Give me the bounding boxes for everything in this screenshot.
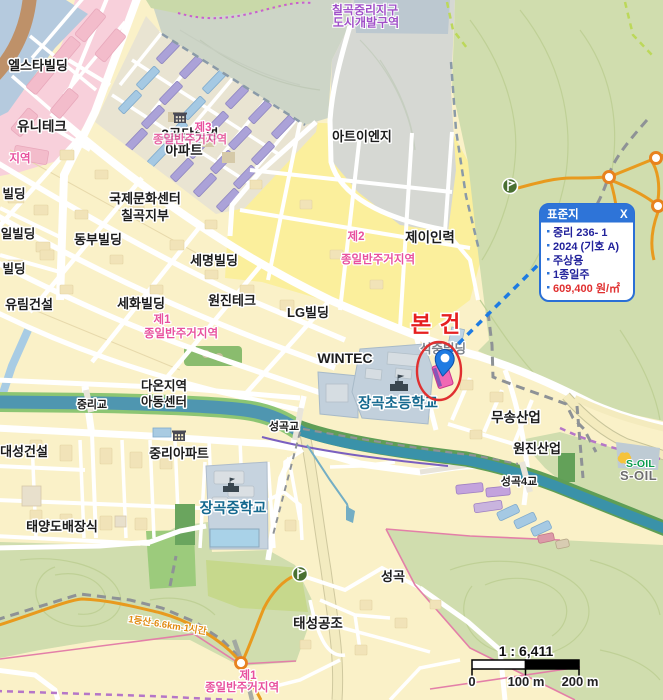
svg-text:종일반주거지역: 종일반주거지역 <box>153 132 227 146</box>
svg-text:제3: 제3 <box>195 120 212 134</box>
svg-text:지역: 지역 <box>9 151 30 165</box>
svg-text:WINTEC: WINTEC <box>317 350 372 366</box>
svg-text:세화빌딩: 세화빌딩 <box>117 296 165 311</box>
svg-text:원진테크: 원진테크 <box>208 293 256 308</box>
svg-text:대성건설: 대성건설 <box>0 444 48 459</box>
svg-text:종일반주거지역: 종일반주거지역 <box>144 326 218 340</box>
svg-text:1 : 6,411: 1 : 6,411 <box>499 643 554 659</box>
svg-text:빌딩: 빌딩 <box>2 261 25 276</box>
svg-text:장곡중학교: 장곡중학교 <box>200 499 267 517</box>
svg-text:태성공조: 태성공조 <box>293 616 343 631</box>
svg-text:중리아파트: 중리아파트 <box>149 446 209 461</box>
svg-text:제2: 제2 <box>348 229 365 243</box>
svg-text:다온지역: 다온지역 <box>141 378 187 393</box>
svg-text:유림건설: 유림건설 <box>5 297 53 312</box>
svg-text:200 m: 200 m <box>562 674 599 689</box>
svg-text:2024 (기호 A): 2024 (기호 A) <box>553 239 619 253</box>
svg-text:세명빌딩: 세명빌딩 <box>190 253 238 268</box>
svg-text:S-OIL: S-OIL <box>620 468 657 483</box>
svg-text:609,400 원/㎡: 609,400 원/㎡ <box>553 281 620 295</box>
svg-text:종일반주거지역: 종일반주거지역 <box>341 252 415 266</box>
svg-text:동부빌딩: 동부빌딩 <box>74 232 122 247</box>
svg-text:중리교: 중리교 <box>77 397 107 411</box>
svg-text:일빌딩: 일빌딩 <box>1 226 36 241</box>
svg-text:제1: 제1 <box>240 668 258 682</box>
svg-text:아동센터: 아동센터 <box>141 394 187 409</box>
svg-text:성곡: 성곡 <box>381 569 405 584</box>
svg-text:빌딩: 빌딩 <box>2 186 25 201</box>
svg-text:제이인력: 제이인력 <box>405 229 455 245</box>
svg-text:국제문화센터: 국제문화센터 <box>109 191 181 206</box>
svg-text:아트이엔지: 아트이엔지 <box>332 129 392 144</box>
svg-text:도시개발구역: 도시개발구역 <box>333 15 399 30</box>
svg-text:표준지: 표준지 <box>547 207 579 221</box>
svg-text:종일반주거지역: 종일반주거지역 <box>205 680 279 694</box>
svg-text:유니테크: 유니테크 <box>17 119 67 134</box>
svg-text:태양도배장식: 태양도배장식 <box>26 519 98 534</box>
svg-text:본 건: 본 건 <box>411 312 462 337</box>
svg-text:성곡4교: 성곡4교 <box>501 474 537 488</box>
svg-text:원진산업: 원진산업 <box>513 441 561 456</box>
svg-text:0: 0 <box>468 674 475 689</box>
svg-text:중리 236- 1: 중리 236- 1 <box>553 225 608 239</box>
svg-text:엘스타빌딩: 엘스타빌딩 <box>8 58 68 73</box>
svg-text:성곡교: 성곡교 <box>269 419 299 433</box>
svg-text:주상용: 주상용 <box>553 253 583 267</box>
svg-text:X: X <box>620 209 628 221</box>
svg-text:LG빌딩: LG빌딩 <box>287 305 329 320</box>
svg-text:100 m: 100 m <box>508 674 545 689</box>
svg-text:1종일주: 1종일주 <box>553 267 589 281</box>
svg-text:무송산업: 무송산업 <box>491 409 541 425</box>
svg-text:제1: 제1 <box>154 312 172 326</box>
svg-text:장곡초등학교: 장곡초등학교 <box>358 394 438 412</box>
svg-text:칠곡지부: 칠곡지부 <box>121 208 169 223</box>
